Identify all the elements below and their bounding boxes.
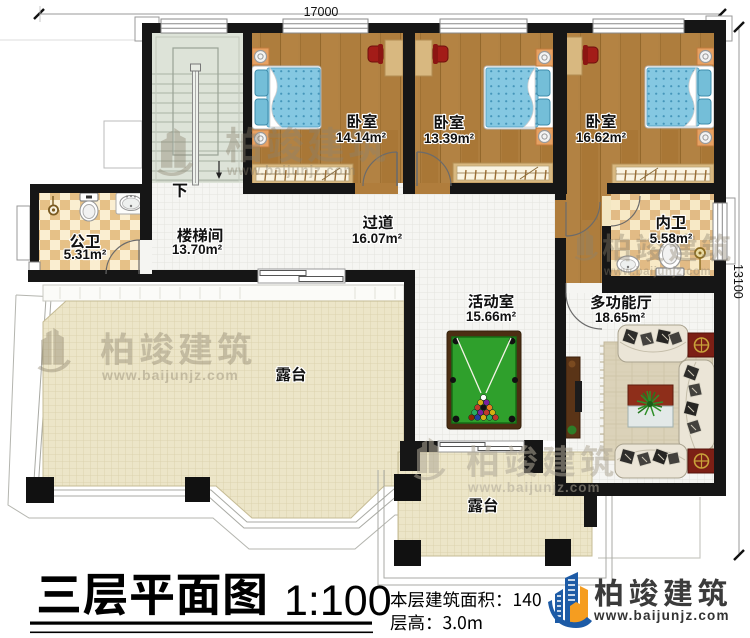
svg-text:www.baijunjz.com: www.baijunjz.com [467, 480, 601, 495]
svg-text:16.07m²: 16.07m² [352, 231, 403, 246]
svg-text:1:100: 1:100 [284, 577, 392, 625]
svg-text:www.baijunjz.com: www.baijunjz.com [101, 367, 239, 383]
svg-text:www.baijunjz.com: www.baijunjz.com [593, 608, 730, 623]
svg-text:5.58m²: 5.58m² [650, 231, 693, 246]
svg-text:www.baijunjz.com: www.baijunjz.com [603, 266, 711, 278]
svg-text:18.65m²: 18.65m² [595, 310, 646, 325]
svg-text:13.70m²: 13.70m² [172, 242, 223, 257]
svg-text:13.39m²: 13.39m² [424, 131, 475, 146]
svg-text:13100: 13100 [731, 264, 745, 299]
svg-text:14.14m²: 14.14m² [336, 130, 387, 145]
svg-text:www.baijunjz.com: www.baijunjz.com [226, 163, 356, 178]
svg-text:17000: 17000 [304, 5, 339, 19]
svg-text:15.66m²: 15.66m² [466, 309, 517, 324]
svg-text:16.62m²: 16.62m² [576, 130, 627, 145]
svg-text:5.31m²: 5.31m² [64, 247, 107, 262]
